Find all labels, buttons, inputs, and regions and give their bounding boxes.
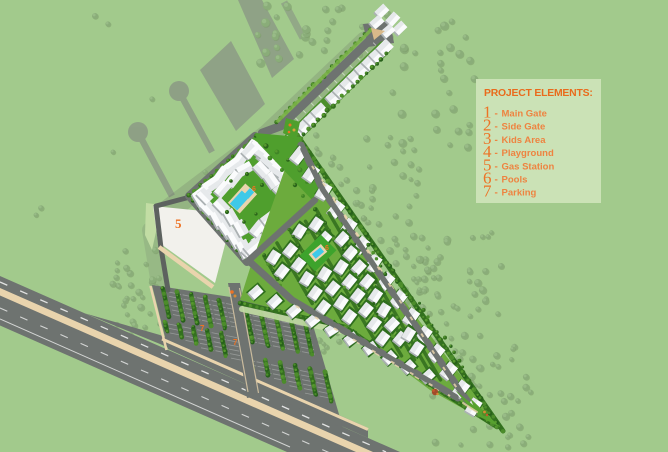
svg-text:-: - <box>495 109 498 120</box>
svg-text:6: 6 <box>325 245 329 252</box>
svg-text:-: - <box>495 175 498 186</box>
svg-text:Pools: Pools <box>502 175 528 186</box>
svg-text:7: 7 <box>233 338 238 347</box>
svg-text:7: 7 <box>483 182 492 201</box>
svg-text:PROJECT ELEMENTS:: PROJECT ELEMENTS: <box>484 88 593 99</box>
svg-text:-: - <box>495 148 498 159</box>
svg-text:Kids Area: Kids Area <box>502 135 547 146</box>
svg-text:6: 6 <box>252 186 256 193</box>
svg-text:Parking: Parking <box>502 188 537 199</box>
svg-text:-: - <box>495 122 498 133</box>
svg-text:-: - <box>495 161 498 172</box>
svg-text:Gas Station: Gas Station <box>502 161 555 172</box>
svg-text:Side Gate: Side Gate <box>502 122 546 133</box>
svg-text:5: 5 <box>175 216 182 231</box>
svg-text:-: - <box>495 188 498 199</box>
svg-text:Main Gate: Main Gate <box>502 109 547 120</box>
svg-text:7: 7 <box>200 324 205 333</box>
svg-text:Playground: Playground <box>502 148 554 159</box>
svg-text:-: - <box>495 135 498 146</box>
